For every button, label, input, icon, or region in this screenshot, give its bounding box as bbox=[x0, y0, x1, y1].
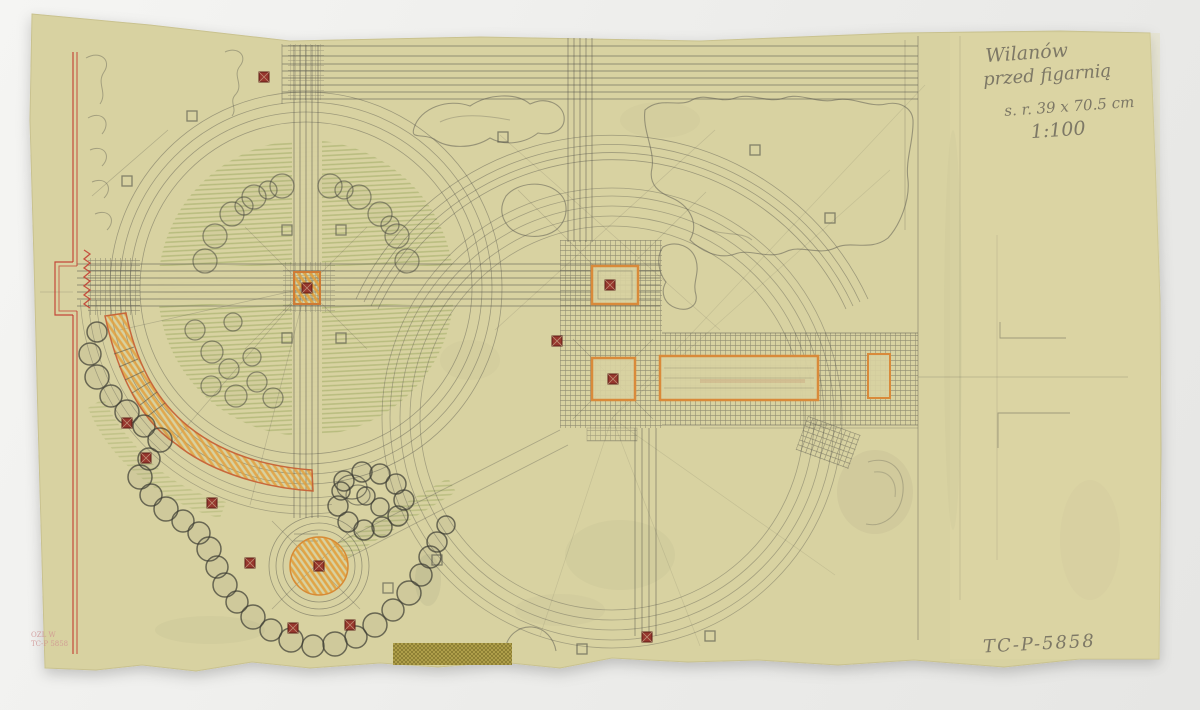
adhesive-tape bbox=[393, 643, 512, 665]
scanned-plan-page: Wilanów przed figarnią s. r. 39 x 70.5 c… bbox=[0, 0, 1200, 710]
stamp-line-1: OZL W bbox=[31, 631, 56, 639]
garden-plan-drawing: Wilanów przed figarnią s. r. 39 x 70.5 c… bbox=[0, 0, 1200, 710]
gate-parterre-grid bbox=[88, 258, 140, 315]
stamp-line-2: TC-P 5858 bbox=[31, 640, 68, 648]
annotation-scale: 1:100 bbox=[1030, 117, 1086, 143]
orange-small-basin bbox=[868, 354, 890, 398]
